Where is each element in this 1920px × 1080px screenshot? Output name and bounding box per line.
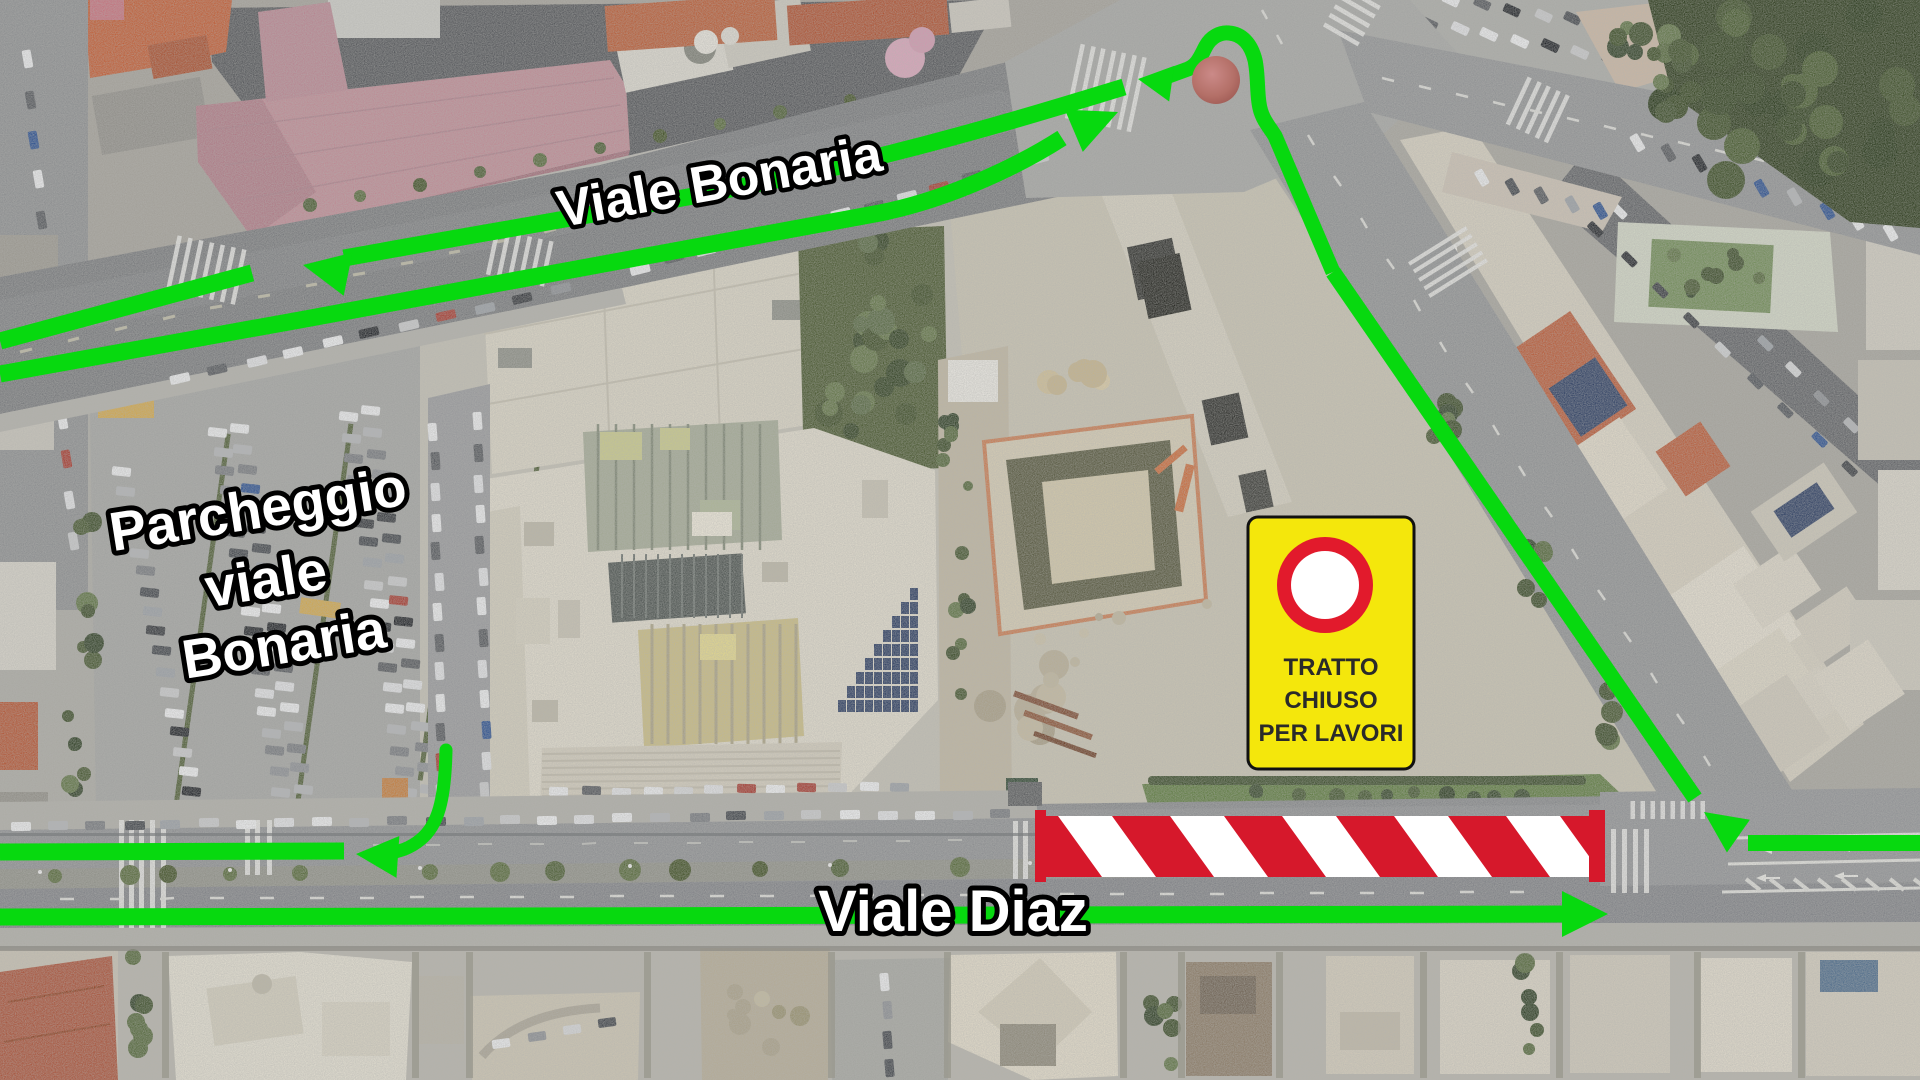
- svg-text:PER LAVORI: PER LAVORI: [1259, 720, 1404, 747]
- svg-text:Viale Diaz: Viale Diaz: [818, 879, 1088, 944]
- svg-text:TRATTO: TRATTO: [1283, 654, 1378, 681]
- svg-text:CHIUSO: CHIUSO: [1284, 687, 1377, 714]
